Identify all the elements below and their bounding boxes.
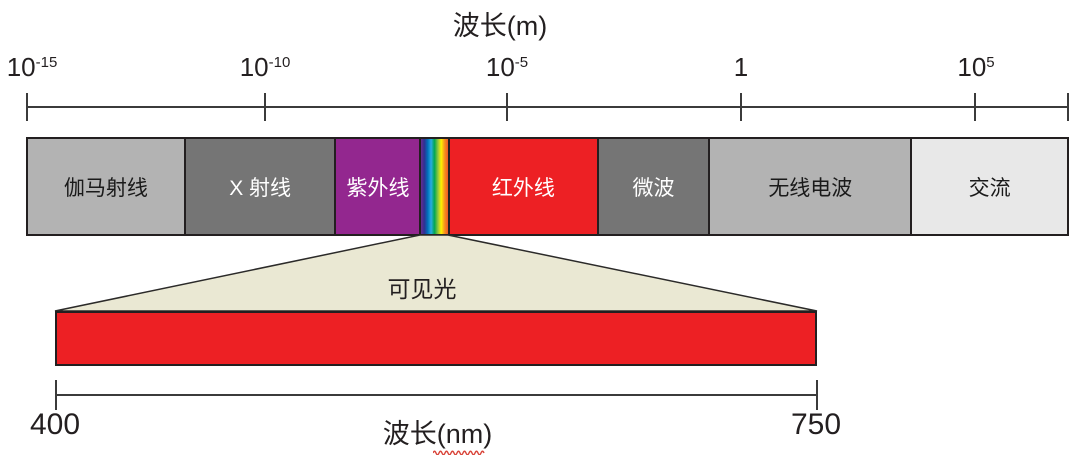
axis-tick-10e-10: [264, 93, 266, 121]
nm-min-label: 400: [15, 408, 95, 442]
axis-label-10e5: 105: [946, 52, 1006, 83]
axis-label-10e-5: 10-5: [472, 52, 542, 83]
axis-tick-1: [740, 93, 742, 121]
nm-scale-tick-400: [55, 380, 57, 410]
visible-light-label: 可见光: [362, 270, 482, 304]
segment-ultraviolet: 紫外线: [336, 139, 419, 234]
segment-x-ray: X 射线: [186, 139, 335, 234]
segment-radio-wave: 无线电波: [710, 139, 910, 234]
axis-label-10e-15: 10-15: [1, 52, 63, 83]
segment-microwave: 微波: [599, 139, 709, 234]
axis-label-10e-10: 10-10: [225, 52, 305, 83]
segment-gamma-ray: 伽马射线: [28, 139, 184, 234]
visible-light-strip: [421, 139, 448, 234]
spellcheck-squiggle-underline: [433, 449, 487, 455]
nm-scale-line: [55, 394, 817, 396]
wavelength-nm-label: 波长(nm): [350, 412, 525, 451]
segment-ac: 交流: [912, 139, 1067, 234]
axis-tick-10e5: [974, 93, 976, 121]
axis-tick-10e-15: [26, 93, 28, 121]
nm-scale-tick-750: [816, 380, 818, 410]
top-axis-line: [26, 106, 1069, 108]
visible-light-funnel: [0, 234, 1078, 314]
segment-infrared: 红外线: [450, 139, 597, 234]
axis-tick-end: [1067, 93, 1069, 121]
spectrum-bar: 伽马射线 X 射线 紫外线 红外线 微波 无线电波 交流: [26, 137, 1069, 236]
visible-light-bar: [55, 311, 817, 366]
em-spectrum-diagram: 波长(m) 10-15 10-10 10-5 1 105 伽马射线 X 射线 紫…: [0, 0, 1078, 461]
nm-max-label: 750: [776, 408, 856, 442]
axis-tick-10e-5: [506, 93, 508, 121]
axis-label-1: 1: [711, 52, 771, 83]
wavelength-m-title: 波长(m): [400, 4, 600, 43]
